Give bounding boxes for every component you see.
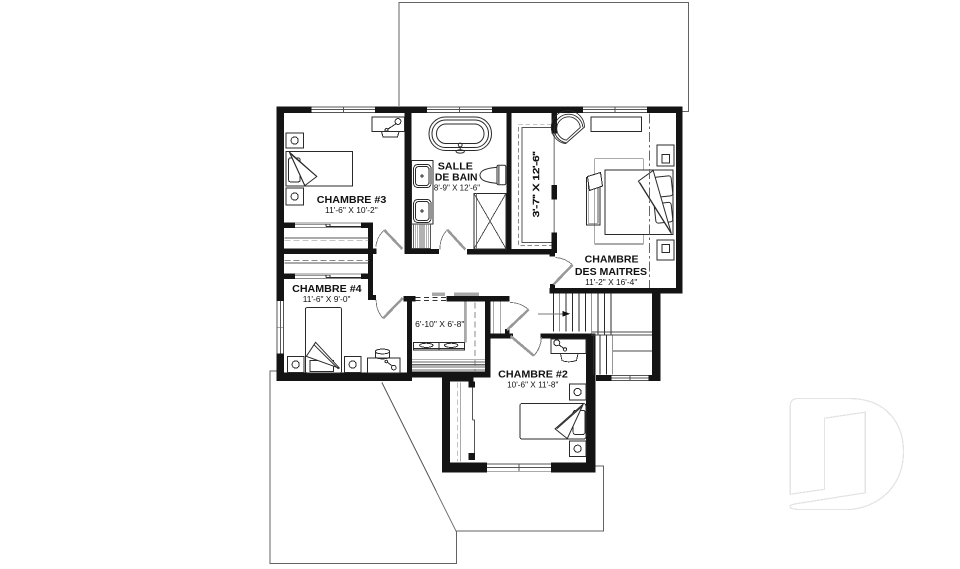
svg-text:3'-7" X 12'-6": 3'-7" X 12'-6" <box>531 151 541 217</box>
svg-text:11'-2" X 16'-4": 11'-2" X 16'-4" <box>585 277 637 287</box>
svg-text:11'-6" X 10'-2": 11'-6" X 10'-2" <box>325 205 378 215</box>
svg-text:6'-10" X 6'-8": 6'-10" X 6'-8" <box>415 319 464 329</box>
svg-text:11'-6" X 9'-0": 11'-6" X 9'-0" <box>303 294 351 304</box>
svg-text:SALLE: SALLE <box>438 161 474 172</box>
svg-text:8'-9" X 12'-6": 8'-9" X 12'-6" <box>434 182 480 192</box>
svg-text:CHAMBRE: CHAMBRE <box>585 254 640 265</box>
svg-text:10'-6" X 11'-8": 10'-6" X 11'-8" <box>507 379 558 389</box>
